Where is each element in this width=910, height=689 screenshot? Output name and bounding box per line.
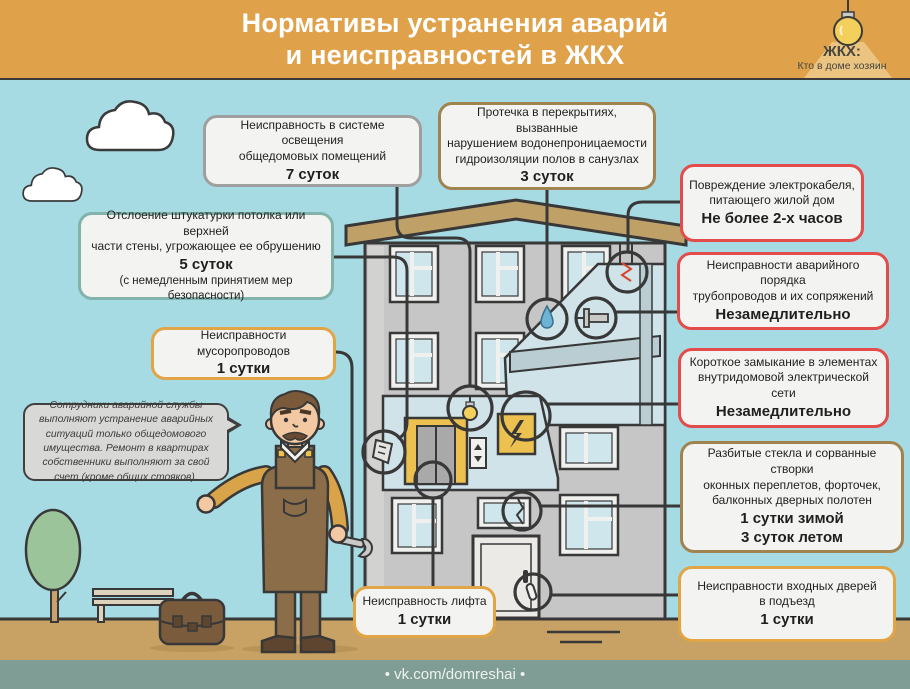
callout-text: Короткое замыкание в элементах bbox=[690, 355, 878, 371]
footer: • vk.com/domreshai • bbox=[0, 660, 910, 689]
callout-text: Неисправности входных дверей bbox=[697, 579, 876, 595]
callout-text: оконных переплетов, форточек, bbox=[703, 478, 881, 494]
callout-duration: 1 сутки bbox=[217, 359, 270, 379]
callout-pipelines: Неисправности аварийного порядка трубопр… bbox=[677, 252, 889, 330]
footer-link: • vk.com/domreshai • bbox=[385, 666, 526, 683]
callout-leak-ceilings: Протечка в перекрытиях, вызванные наруше… bbox=[438, 102, 656, 190]
callout-text: Протечка в перекрытиях, вызванные bbox=[446, 105, 648, 136]
callout-text: Неисправность в системе освещения bbox=[211, 118, 414, 149]
callout-text: Неисправности мусоропроводов bbox=[159, 328, 328, 359]
callout-broken-glass: Разбитые стекла и сорванные створки окон… bbox=[680, 441, 904, 553]
callout-text: части стены, угрожающее ее обрушению bbox=[91, 239, 321, 255]
callout-elevator: Неисправность лифта 1 сутки bbox=[353, 586, 496, 638]
building bbox=[346, 200, 686, 619]
callout-text: Неисправность лифта bbox=[363, 594, 487, 610]
callout-text: в подъезд bbox=[759, 594, 815, 610]
callout-lighting: Неисправность в системе освещения общедо… bbox=[203, 115, 422, 187]
callout-text: нарушением водонепроницаемости bbox=[447, 136, 647, 152]
brand-logo: ЖКХ: Кто в доме хозяин bbox=[776, 0, 908, 78]
title-line-2: и неисправностей в ЖКХ bbox=[0, 39, 910, 71]
callout-text: Разбитые стекла и сорванные створки bbox=[688, 446, 896, 477]
logo-text-primary: ЖКХ: bbox=[776, 43, 908, 60]
callout-electric-cable: Повреждение электрокабеля, питающего жил… bbox=[680, 164, 864, 242]
callout-text: внутридомовой электрической сети bbox=[686, 370, 881, 401]
callout-text: (с немедленным принятием мер безопасност… bbox=[86, 274, 326, 304]
callout-text: балконных дверных полотен bbox=[712, 493, 872, 509]
callout-duration: Незамедлительно bbox=[715, 305, 850, 325]
callout-duration: 1 сутки bbox=[398, 610, 451, 630]
callout-text: трубопроводов и их сопряжений bbox=[693, 289, 874, 305]
callout-duration: 1 сутки зимой bbox=[740, 509, 844, 529]
callout-entrance-doors: Неисправности входных дверей в подъезд 1… bbox=[678, 566, 896, 642]
page-title: Нормативы устранения аварий и неисправно… bbox=[0, 7, 910, 72]
callout-text: питающего жилой дом bbox=[709, 193, 834, 209]
callout-plaster: Отслоение штукатурки потолка или верхней… bbox=[78, 212, 334, 300]
callout-trash-chute: Неисправности мусоропроводов 1 сутки bbox=[151, 327, 336, 380]
infographic-poster: Нормативы устранения аварий и неисправно… bbox=[0, 0, 910, 689]
header: Нормативы устранения аварий и неисправно… bbox=[0, 0, 910, 80]
callout-duration: Незамедлительно bbox=[716, 402, 851, 422]
callout-duration: 5 суток bbox=[179, 255, 232, 275]
callout-text: общедомовых помещений bbox=[239, 149, 386, 165]
briefcase-icon bbox=[160, 594, 224, 645]
callout-duration: 1 сутки bbox=[760, 610, 813, 630]
title-line-1: Нормативы устранения аварий bbox=[0, 7, 910, 39]
callout-duration: Не более 2-х часов bbox=[701, 209, 842, 229]
callout-text: Повреждение электрокабеля, bbox=[689, 178, 855, 194]
callout-text: Неисправности аварийного порядка bbox=[685, 258, 881, 289]
callout-duration: 3 суток bbox=[520, 167, 573, 187]
callout-duration: 7 суток bbox=[286, 165, 339, 185]
callout-text: Отслоение штукатурки потолка или верхней bbox=[86, 208, 326, 239]
building-lobby bbox=[383, 396, 558, 490]
callout-text: гидроизоляции полов в санузлах bbox=[455, 152, 639, 168]
callout-duration: 3 суток летом bbox=[741, 528, 843, 548]
logo-text-secondary: Кто в доме хозяин bbox=[776, 60, 908, 72]
callout-short-circuit: Короткое замыкание в элементах внутридом… bbox=[678, 348, 889, 428]
note-bubble: Сотрудники аварийной службы выполняют ус… bbox=[23, 403, 229, 481]
note-text: Сотрудники аварийной службы выполняют ус… bbox=[34, 399, 218, 485]
